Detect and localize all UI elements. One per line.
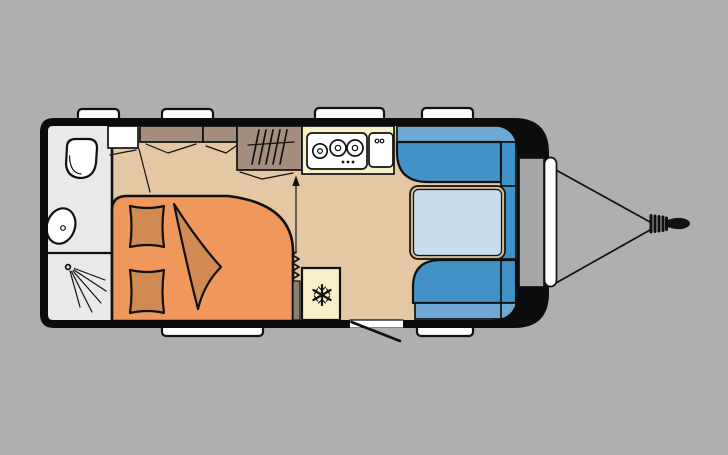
overhead-locker-1 <box>140 126 203 142</box>
caravan-floorplan-image <box>0 0 728 455</box>
front-end <box>519 158 557 288</box>
hob <box>307 133 367 169</box>
overhead-locker-2 <box>203 126 237 142</box>
toilet <box>66 139 97 178</box>
table-top <box>414 190 502 256</box>
sink-basin <box>369 133 393 167</box>
rear-bench-cushion <box>397 142 501 182</box>
hob-knob-dot <box>352 161 355 164</box>
rear-bench-backrest <box>397 126 517 142</box>
gas-locker <box>519 158 544 287</box>
double-bed <box>112 196 293 321</box>
corner-cabinet <box>108 126 138 148</box>
hitch-knob <box>666 218 690 229</box>
front-service-hatch <box>545 158 557 287</box>
dinette <box>397 126 517 320</box>
fridge-side-panel <box>293 281 300 320</box>
hob-knob-dot <box>347 161 350 164</box>
kitchen-sink <box>369 133 393 167</box>
dinette-table <box>410 186 505 259</box>
pillow-2 <box>130 270 164 313</box>
floorplan-svg <box>0 0 728 455</box>
hob-knob-dot <box>342 161 345 164</box>
pillow-1 <box>130 206 164 247</box>
